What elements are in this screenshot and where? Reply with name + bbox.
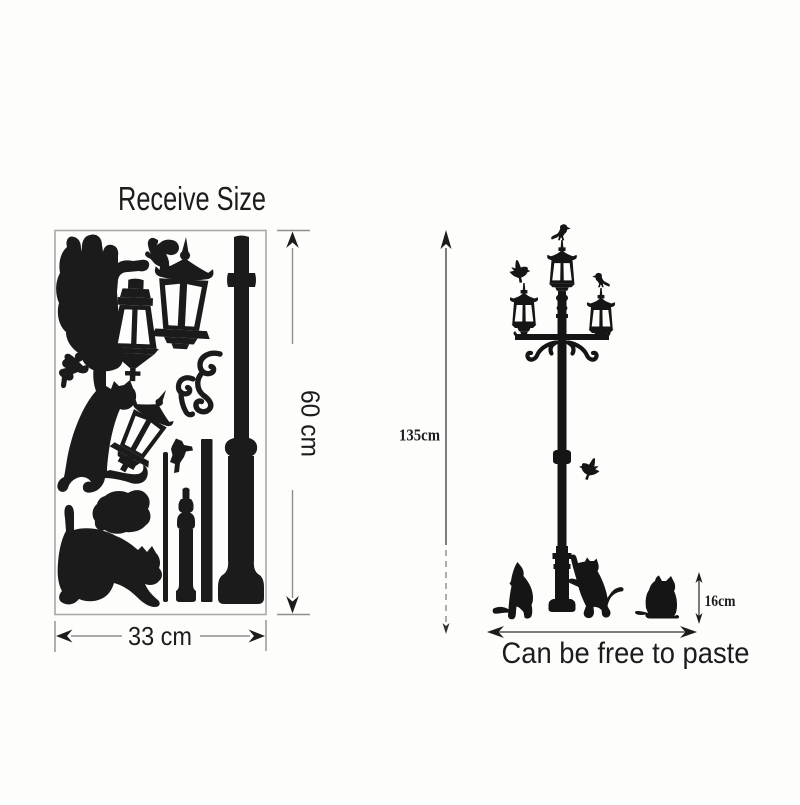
svg-text:Can be free to paste: Can be free to paste [502,637,750,670]
svg-text:16cm: 16cm [705,593,737,610]
svg-text:33 cm: 33 cm [128,621,192,651]
svg-text:60 cm: 60 cm [296,390,326,457]
svg-text:Receive Size: Receive Size [118,180,266,217]
svg-text:135cm: 135cm [399,426,440,445]
